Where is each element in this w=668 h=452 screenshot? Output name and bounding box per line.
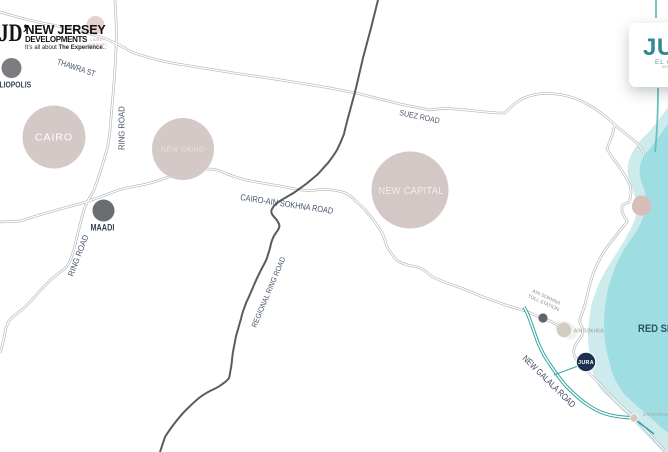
svg-text:MAADI: MAADI [91,223,115,233]
svg-text:REGIONAL RING ROAD: REGIONAL RING ROAD [249,255,287,328]
svg-text:RING ROAD: RING ROAD [66,233,90,277]
svg-text:THAWRA ST: THAWRA ST [56,57,97,79]
svg-text:RED SEA: RED SEA [638,323,668,335]
svg-text:JURA: JURA [578,360,594,366]
svg-text:CAIRO: CAIRO [35,132,73,144]
svg-text:HELIOPOLIS: HELIOPOLIS [0,80,31,90]
svg-text:NEW CAIRO: NEW CAIRO [161,145,205,153]
svg-text:ZAAFARANA: ZAAFARANA [643,412,668,417]
svg-text:RING ROAD: RING ROAD [117,106,126,150]
svg-text:NEW CAPITAL: NEW CAPITAL [378,186,444,197]
svg-text:AIN SOKHNA: AIN SOKHNA [574,328,604,334]
